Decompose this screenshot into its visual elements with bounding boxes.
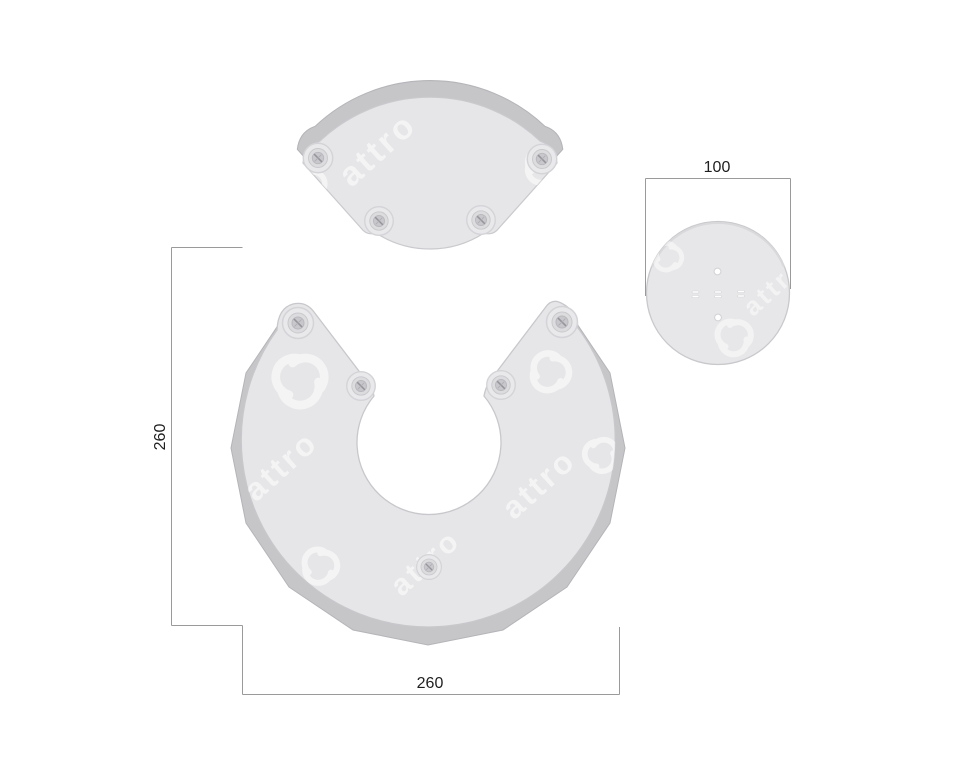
fan-screw-top-right [527, 144, 556, 173]
dimension-label-ring-width: 260 [417, 675, 444, 692]
ring-screw-inner-right [487, 371, 516, 400]
drawing-canvas: attro attro attro attro [0, 0, 970, 761]
ring-screw-bottom [417, 555, 442, 580]
round-plate-hole-bottom [715, 314, 722, 321]
ring-screw-arm-right [547, 307, 578, 338]
fan-screw-top-left [303, 143, 332, 172]
ring-screw-arm-left [283, 308, 314, 339]
fan-screw-bottom-left [365, 207, 394, 236]
dimension-label-round-width: 100 [704, 159, 731, 176]
ring-screw-inner-left [347, 372, 376, 401]
round-plate-hole-top [714, 268, 721, 275]
dimension-label-ring-height: 260 [152, 424, 169, 451]
fan-screw-bottom-right [467, 206, 496, 235]
